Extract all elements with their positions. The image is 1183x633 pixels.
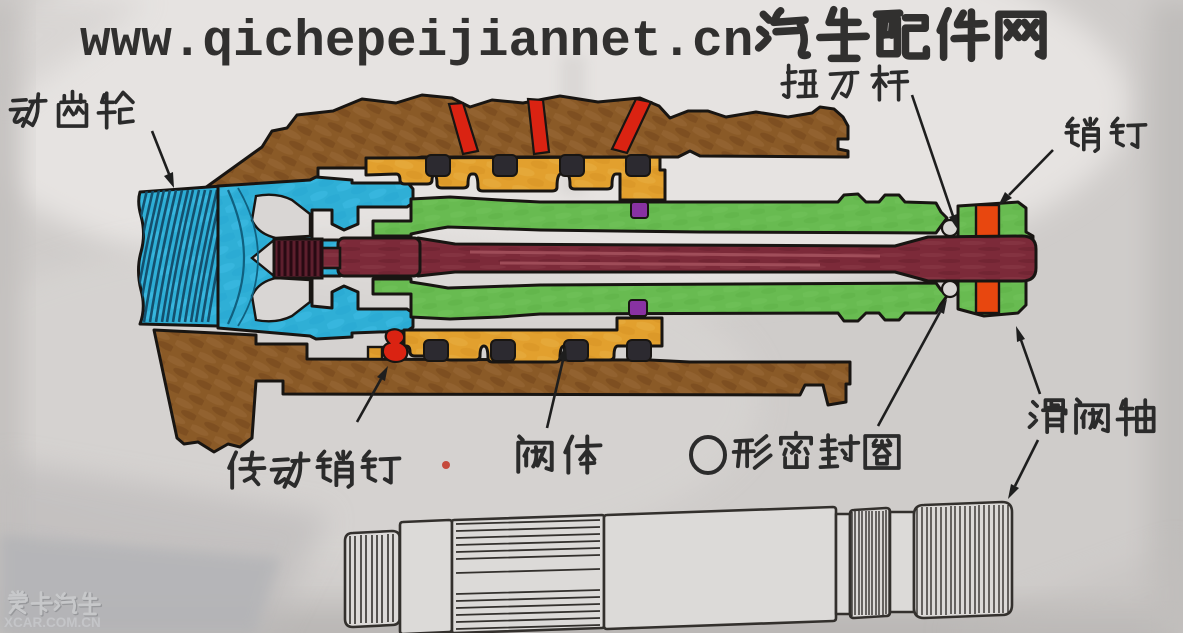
svg-text:XCAR.COM.CN: XCAR.COM.CN — [4, 615, 101, 630]
svg-text:www.qichepeijiannet.cn: www.qichepeijiannet.cn — [80, 14, 753, 71]
